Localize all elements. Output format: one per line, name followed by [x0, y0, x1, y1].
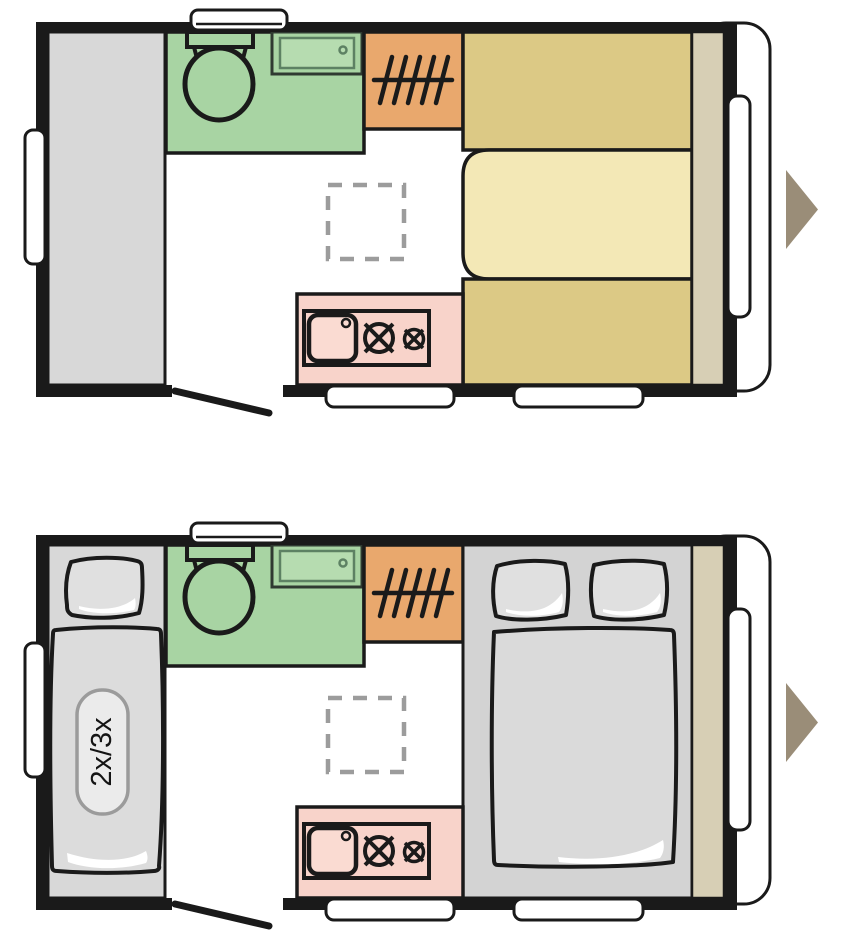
single-bed: 2x/3x [50, 627, 163, 873]
window-left [25, 643, 45, 777]
window-right [728, 609, 750, 830]
bathroom [166, 32, 364, 153]
direction-arrow-icon [786, 170, 818, 249]
dinette-seat-bottom [463, 279, 692, 385]
pillow [66, 558, 143, 618]
floorplan-page: 2x/3x [0, 0, 854, 950]
front-shelf-strip [692, 32, 724, 385]
entry-door-swing [175, 391, 269, 413]
dinette-table [463, 150, 692, 279]
entry-door-swing [175, 904, 269, 926]
dinette-seat-top [463, 32, 692, 150]
floorplan-day [25, 10, 818, 413]
window-bottom-1 [326, 899, 454, 920]
direction-arrow-icon [786, 683, 818, 762]
dinette [463, 32, 692, 385]
floorplan-night: 2x/3x [25, 523, 818, 926]
table-dashed-outline [328, 698, 404, 772]
window-top [191, 523, 287, 543]
bed-capacity-label: 2x/3x [86, 717, 118, 787]
kitchen-unit [297, 807, 463, 898]
window-top [191, 10, 287, 30]
table-dashed-outline [328, 185, 404, 259]
wardrobe-cabinet [364, 545, 463, 642]
pillow-right [591, 561, 667, 620]
bathroom [166, 545, 364, 666]
single-bed-zone: 2x/3x [48, 545, 165, 898]
double-bed-zone [463, 545, 692, 898]
window-right [728, 96, 750, 317]
toilet-icon [185, 32, 253, 120]
pillow-left [493, 561, 568, 620]
washbasin-icon [272, 32, 362, 74]
double-bed-mattress [492, 628, 676, 867]
front-shelf-strip [692, 545, 724, 898]
floorplan-canvas: 2x/3x [0, 0, 854, 950]
washbasin-icon [272, 545, 362, 587]
kitchen-unit [297, 294, 463, 385]
window-bottom-1 [326, 386, 454, 407]
window-bottom-2 [514, 899, 643, 920]
window-left [25, 130, 45, 264]
wardrobe-cabinet [364, 32, 463, 129]
window-bottom-2 [514, 386, 643, 407]
toilet-icon [185, 545, 253, 633]
wardrobe-block [48, 32, 165, 385]
